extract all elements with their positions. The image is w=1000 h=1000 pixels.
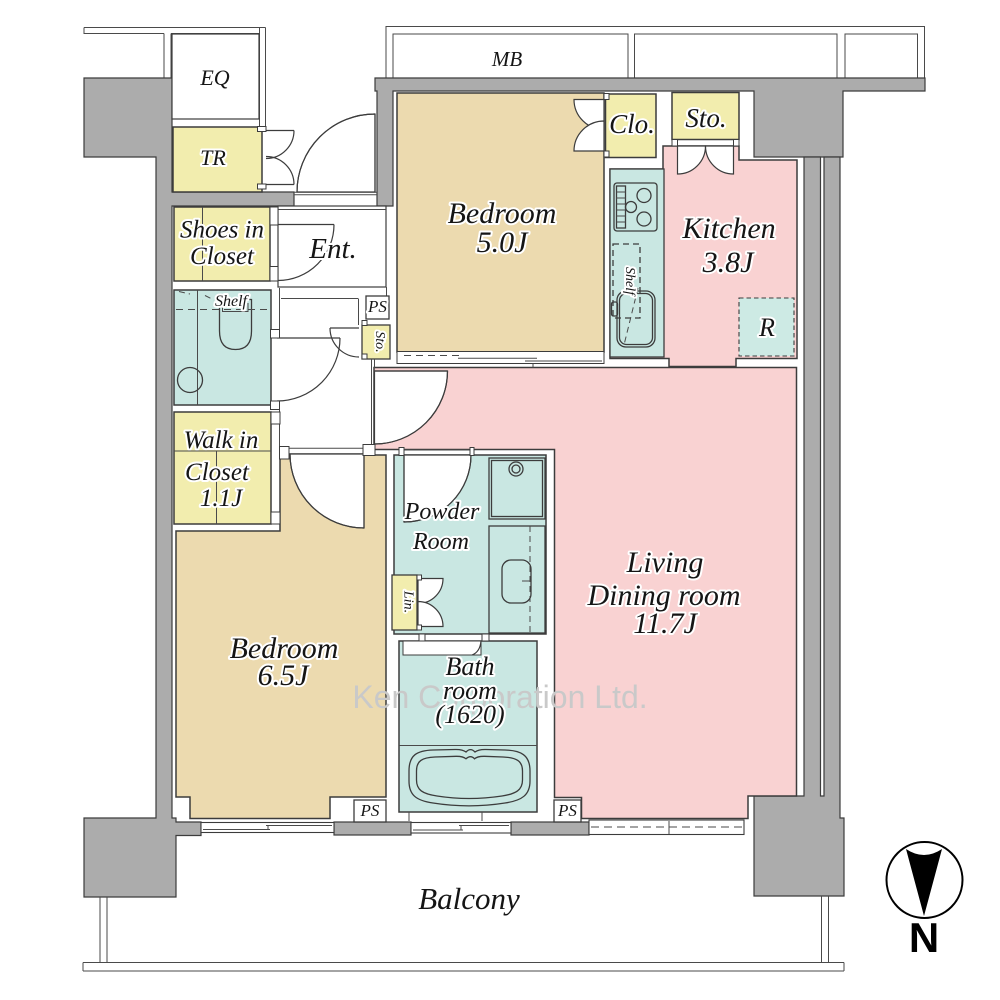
svg-text:5.0J: 5.0J (477, 226, 530, 259)
svg-text:Room: Room (412, 529, 469, 555)
svg-text:(1620): (1620) (435, 700, 504, 729)
svg-text:Closet: Closet (185, 459, 250, 486)
svg-text:Sto.: Sto. (372, 331, 387, 352)
svg-text:TR: TR (200, 145, 226, 170)
svg-text:Shoes in: Shoes in (180, 217, 264, 244)
svg-text:Walk in: Walk in (184, 427, 259, 454)
svg-text:Living: Living (626, 546, 704, 579)
svg-text:MB: MB (491, 47, 522, 71)
svg-text:Clo.: Clo. (609, 109, 655, 139)
svg-text:PS: PS (367, 297, 387, 316)
svg-text:R: R (758, 313, 775, 342)
svg-text:Shelf: Shelf (215, 293, 250, 310)
svg-text:N: N (909, 914, 939, 961)
svg-text:EQ: EQ (199, 65, 229, 90)
svg-text:Ent.: Ent. (308, 233, 357, 265)
svg-text:11.7J: 11.7J (633, 607, 698, 640)
svg-text:Powder: Powder (404, 499, 480, 525)
svg-text:Closet: Closet (190, 243, 255, 270)
svg-text:Shelf: Shelf (622, 267, 637, 297)
svg-text:Lin.: Lin. (401, 590, 416, 613)
svg-text:PS: PS (360, 801, 380, 820)
svg-text:PS: PS (557, 801, 577, 820)
svg-text:Balcony: Balcony (418, 881, 520, 916)
svg-text:6.5J: 6.5J (258, 659, 311, 692)
svg-text:Kitchen: Kitchen (681, 212, 775, 245)
svg-text:Sto.: Sto. (685, 103, 726, 133)
svg-text:3.8J: 3.8J (702, 246, 756, 279)
svg-text:1.1J: 1.1J (200, 485, 244, 512)
